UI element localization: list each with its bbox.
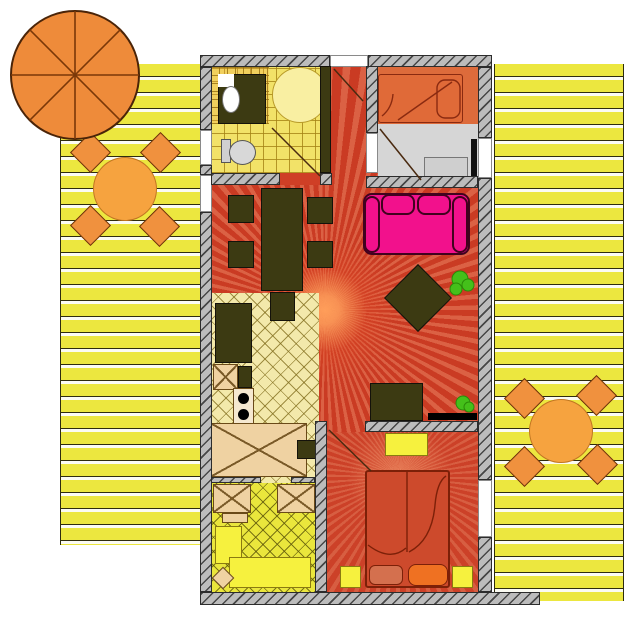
- double-bed-details: [368, 472, 446, 554]
- single-bed-details: [382, 80, 460, 120]
- plants: [450, 271, 474, 412]
- floor-plan: [0, 0, 640, 619]
- detail-lines: [0, 0, 640, 619]
